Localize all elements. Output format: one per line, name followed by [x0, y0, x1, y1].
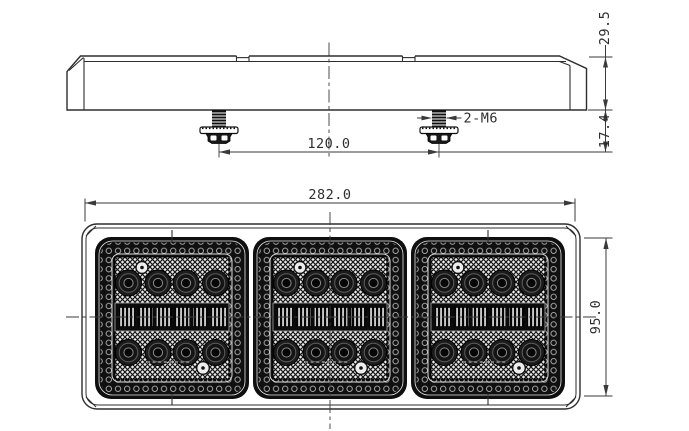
label-thread-spec: 2-M6 — [417, 111, 498, 127]
dim-stud-length-text: 17.4 — [597, 114, 613, 149]
dim-body-height: 29.5 — [588, 11, 613, 110]
dim-stud-length: 17.4 — [597, 110, 613, 152]
led-module-left — [95, 237, 249, 399]
front-view — [66, 212, 596, 429]
technical-drawing-canvas: 282.0 95.0 29.5 17.4 — [0, 0, 689, 431]
dim-lens-height: 95.0 — [584, 238, 613, 396]
dim-bolt-spacing: 120.0 — [219, 136, 613, 155]
dim-bolt-spacing-text: 120.0 — [307, 136, 350, 152]
dim-lens-height-text: 95.0 — [588, 300, 604, 335]
drawing-stage: 282.0 95.0 29.5 17.4 — [0, 0, 689, 431]
lamp-side-outline — [67, 56, 587, 110]
mounting-bolt-left — [200, 110, 238, 158]
dim-overall-width-text: 282.0 — [308, 187, 351, 203]
label-thread-spec-text: 2-M6 — [464, 111, 499, 127]
dim-body-height-text: 29.5 — [597, 11, 613, 46]
led-module-right — [411, 237, 565, 399]
